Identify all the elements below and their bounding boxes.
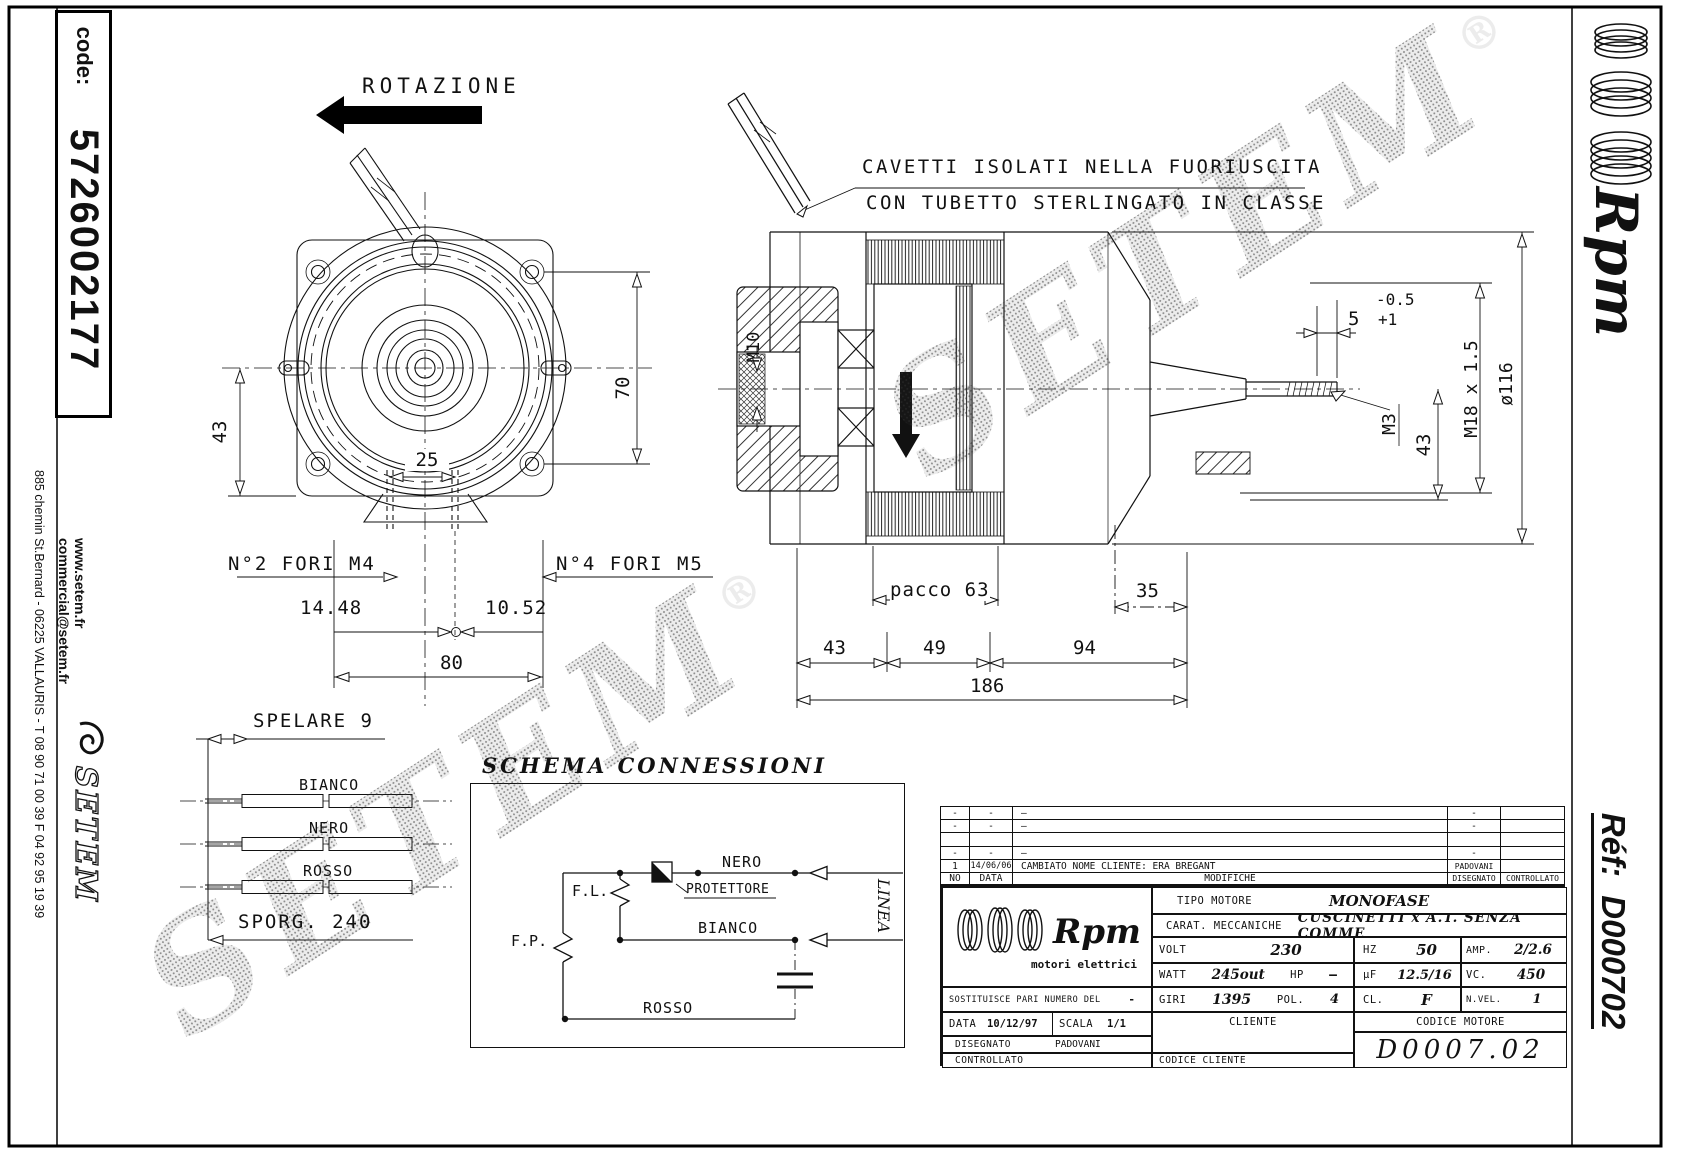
- vc-value: 450: [1496, 967, 1566, 983]
- side-dim-thread: M18 x 1.5: [1460, 329, 1482, 449]
- title-block-rpm-sub: motori elettrici: [1031, 958, 1137, 971]
- cable-note-line1: CAVETTI ISOLATI NELLA FUORIUSCITA: [862, 156, 1322, 178]
- wire-label-bianco: BIANCO: [299, 776, 359, 794]
- rev-cell: -: [940, 846, 970, 860]
- giri-value: 1395: [1212, 992, 1251, 1008]
- giri-cell: GIRI 1395 POL. 4: [1152, 987, 1354, 1012]
- protrusion-label: SPORG. 240: [238, 911, 372, 933]
- amp-cell: AMP. 2/2.6: [1461, 937, 1567, 963]
- front-dim-70: 70: [612, 366, 634, 410]
- rpm-coil-small-icon: [953, 904, 1045, 960]
- hz-value: 50: [1393, 941, 1460, 959]
- side-dim-pacco: pacco 63: [890, 579, 990, 601]
- scala-cell: SCALA 1/1: [1052, 1012, 1152, 1036]
- code-value: 5726002177: [62, 102, 106, 398]
- hp-value: —: [1329, 968, 1337, 983]
- amp-value: 2/2.6: [1500, 942, 1566, 958]
- disegnato-label: DISEGNATO: [955, 1039, 1055, 1050]
- sostituisce-value: -: [1128, 993, 1135, 1006]
- rev-cell: —: [1012, 846, 1448, 860]
- schema-bianco-label: BIANCO: [698, 919, 758, 937]
- side-dim-m10: M10: [744, 321, 764, 373]
- watt-label: WATT: [1159, 969, 1186, 981]
- schema-fl-label: F.L.: [572, 882, 608, 900]
- setem-logo: SETEM: [60, 716, 112, 906]
- watt-value: 245out: [1212, 967, 1265, 983]
- vc-cell: VC. 450: [1461, 963, 1567, 987]
- scala-label: SCALA: [1059, 1018, 1107, 1030]
- rev-author: PADOVANI: [1447, 859, 1501, 873]
- controllato-label: CONTROLLATO: [955, 1055, 1023, 1066]
- rpm-brand-script: Rpm: [1581, 187, 1651, 337]
- drawing-sheet: SETEM® SETEM®: [0, 0, 1683, 1153]
- hp-label: HP: [1290, 969, 1304, 981]
- rev-cell: -: [969, 846, 1013, 860]
- volt-cell: VOLT 230: [1152, 937, 1354, 963]
- side-tol-plus: +1: [1378, 310, 1397, 329]
- codice-cliente-label: CODICE CLIENTE: [1159, 1055, 1246, 1066]
- rpm-coil-logo-icon: [1586, 20, 1656, 194]
- cable-note-line2: CON TUBETTO STERLINGATO IN CLASSE: [866, 192, 1326, 214]
- address-line: 885 chemin St.Bernard - 06225 VALLAURIS …: [32, 470, 46, 910]
- rev-cell: -: [940, 806, 970, 820]
- sostituisce-label: SOSTITUISCE PARI NUMERO DEL: [949, 995, 1101, 1005]
- controllato-cell: CONTROLLATO: [942, 1053, 1152, 1068]
- codice-motore-header-cell: CODICE MOTORE: [1354, 1012, 1567, 1032]
- side-dim-35: 35: [1136, 580, 1159, 602]
- schema-fp-label: F.P.: [511, 932, 547, 950]
- hz-label: HZ: [1363, 944, 1393, 956]
- rev-cell: -: [969, 819, 1013, 833]
- code-label: code:: [71, 21, 97, 91]
- schema-linea-label: LINEA: [875, 874, 893, 938]
- front-dim-25: 25: [405, 449, 449, 471]
- disegnato-cell: DISEGNATO PADOVANI: [942, 1036, 1152, 1053]
- rev-header-data: DATA: [969, 872, 1013, 885]
- title-block: Rpm motori elettrici TIPO MOTORE MONOFAS…: [940, 885, 1565, 1066]
- codice-motore-value-cell: D0007.02: [1354, 1032, 1567, 1068]
- data-label: DATA: [949, 1018, 987, 1030]
- rev-cell: -: [1447, 846, 1501, 860]
- front-dim-43: 43: [209, 410, 231, 454]
- pol-value: 4: [1330, 992, 1339, 1007]
- classe-value: F: [1393, 991, 1460, 1009]
- rev-description: CAMBIATO NOME CLIENTE: ERA BREGANT: [1012, 859, 1448, 873]
- side-tol-minus: -0.5: [1376, 290, 1415, 309]
- rev-cell: [1500, 806, 1565, 820]
- side-dim-43-shaft: 43: [1413, 423, 1435, 467]
- rev-cell: [940, 832, 970, 847]
- front-dim-14-48: 14.48: [300, 597, 362, 619]
- rev-cell: -: [1447, 819, 1501, 833]
- note-holes-m5: N°4 FORI M5: [556, 553, 704, 575]
- codice-cliente-cell: CODICE CLIENTE: [1152, 1053, 1354, 1068]
- rev-number: 1: [940, 859, 970, 873]
- uf-cell: µF 12.5/16: [1354, 963, 1461, 987]
- wire-label-rosso: ROSSO: [303, 862, 353, 880]
- setem-logo-text: SETEM: [69, 766, 104, 904]
- pol-label: POL.: [1277, 994, 1304, 1006]
- rev-header-disegnato: DISEGNATO: [1447, 872, 1501, 885]
- carat-meccaniche-cell: CARAT. MECCANICHE CUSCINETTI x A.T. SENZ…: [1152, 914, 1567, 937]
- rev-cell: —: [1012, 819, 1448, 833]
- rev-check: [1500, 859, 1565, 873]
- side-dim-d116: ø116: [1495, 349, 1517, 419]
- scala-value: 1/1: [1107, 1018, 1126, 1030]
- schema-protettore-label: PROTETTORE: [686, 882, 769, 897]
- sostituisce-cell: SOSTITUISCE PARI NUMERO DEL -: [942, 987, 1152, 1012]
- contact-links: www.setem.fr commercial@setem.fr: [56, 538, 88, 678]
- uf-value: 12.5/16: [1389, 968, 1460, 983]
- rev-cell: —: [1012, 806, 1448, 820]
- rev-cell: [1500, 819, 1565, 833]
- wire-label-nero: NERO: [309, 819, 349, 837]
- rev-cell: [1500, 846, 1565, 860]
- title-block-logo-cell: Rpm motori elettrici: [942, 887, 1152, 987]
- data-cell: DATA 10/12/97: [942, 1012, 1053, 1036]
- tipo-motore-value: MONOFASE: [1329, 892, 1429, 910]
- strip-label: SPELARE 9: [253, 710, 374, 732]
- classe-cell: CL. F: [1354, 987, 1461, 1012]
- side-dim-186: 186: [970, 675, 1004, 697]
- rev-cell: [1447, 832, 1501, 847]
- rotation-arrow-icon: [316, 96, 482, 134]
- nvel-value: 1: [1508, 992, 1566, 1007]
- side-dim-5: 5: [1348, 308, 1359, 330]
- title-block-rpm-script: Rpm: [1053, 912, 1141, 952]
- email-text: commercial@setem.fr: [56, 538, 72, 678]
- tipo-motore-cell: TIPO MOTORE MONOFASE: [1152, 887, 1567, 914]
- revision-table: - - — - - - — - - - — - 1 14/06/06 CAMBI…: [940, 806, 1565, 885]
- side-dim-43: 43: [823, 637, 846, 659]
- rev-header-controllato: CONTROLLATO: [1500, 872, 1565, 885]
- hz-cell: HZ 50: [1354, 937, 1461, 963]
- codice-motore-label: CODICE MOTORE: [1416, 1016, 1505, 1028]
- giri-label: GIRI: [1159, 994, 1186, 1006]
- codice-motore-value: D0007.02: [1376, 1035, 1544, 1065]
- data-value: 10/12/97: [987, 1018, 1038, 1030]
- side-dim-m3: M3: [1378, 402, 1400, 446]
- rev-cell: -: [940, 819, 970, 833]
- setem-swirl-icon: [62, 716, 110, 760]
- rev-header-no: NO: [940, 872, 970, 885]
- rev-header-modifiche: MODIFICHE: [1012, 872, 1448, 885]
- schema-title: SCHEMA CONNESSIONI: [482, 753, 827, 778]
- side-dim-49: 49: [923, 637, 946, 659]
- schema-nero-label: NERO: [722, 853, 762, 871]
- rev-cell: -: [969, 806, 1013, 820]
- side-dim-94: 94: [1073, 637, 1096, 659]
- front-dim-80: 80: [440, 652, 463, 674]
- cliente-label: CLIENTE: [1229, 1016, 1277, 1028]
- schema-rosso-label: ROSSO: [643, 999, 693, 1017]
- rev-cell: -: [1447, 806, 1501, 820]
- rev-cell: [969, 832, 1013, 847]
- rotation-label: ROTAZIONE: [362, 74, 521, 98]
- volt-value: 230: [1219, 941, 1353, 959]
- nvel-label: N.VEL.: [1466, 995, 1508, 1005]
- volt-label: VOLT: [1159, 944, 1219, 956]
- nvel-cell: N.VEL. 1: [1461, 987, 1567, 1012]
- front-dim-10-52: 10.52: [485, 597, 547, 619]
- rev-date: 14/06/06: [969, 859, 1013, 873]
- watt-cell: WATT 245out HP —: [1152, 963, 1354, 987]
- tipo-motore-label: TIPO MOTORE: [1177, 895, 1307, 907]
- vc-label: VC.: [1466, 969, 1496, 981]
- reference-number: Réf: D000702: [1589, 737, 1635, 1105]
- disegnato-value: PADOVANI: [1055, 1039, 1101, 1050]
- carat-meccaniche-value: CUSCINETTI x A.T. SENZA COMME: [1298, 914, 1566, 937]
- website-text: www.setem.fr: [72, 538, 88, 678]
- rev-cell: [1500, 832, 1565, 847]
- note-holes-m4: N°2 FORI M4: [228, 553, 376, 575]
- uf-label: µF: [1363, 969, 1389, 981]
- classe-label: CL.: [1363, 994, 1393, 1006]
- carat-meccaniche-label: CARAT. MECCANICHE: [1166, 920, 1288, 932]
- amp-label: AMP.: [1466, 945, 1500, 956]
- cliente-cell: CLIENTE: [1152, 1012, 1354, 1053]
- rev-cell: [1012, 832, 1448, 847]
